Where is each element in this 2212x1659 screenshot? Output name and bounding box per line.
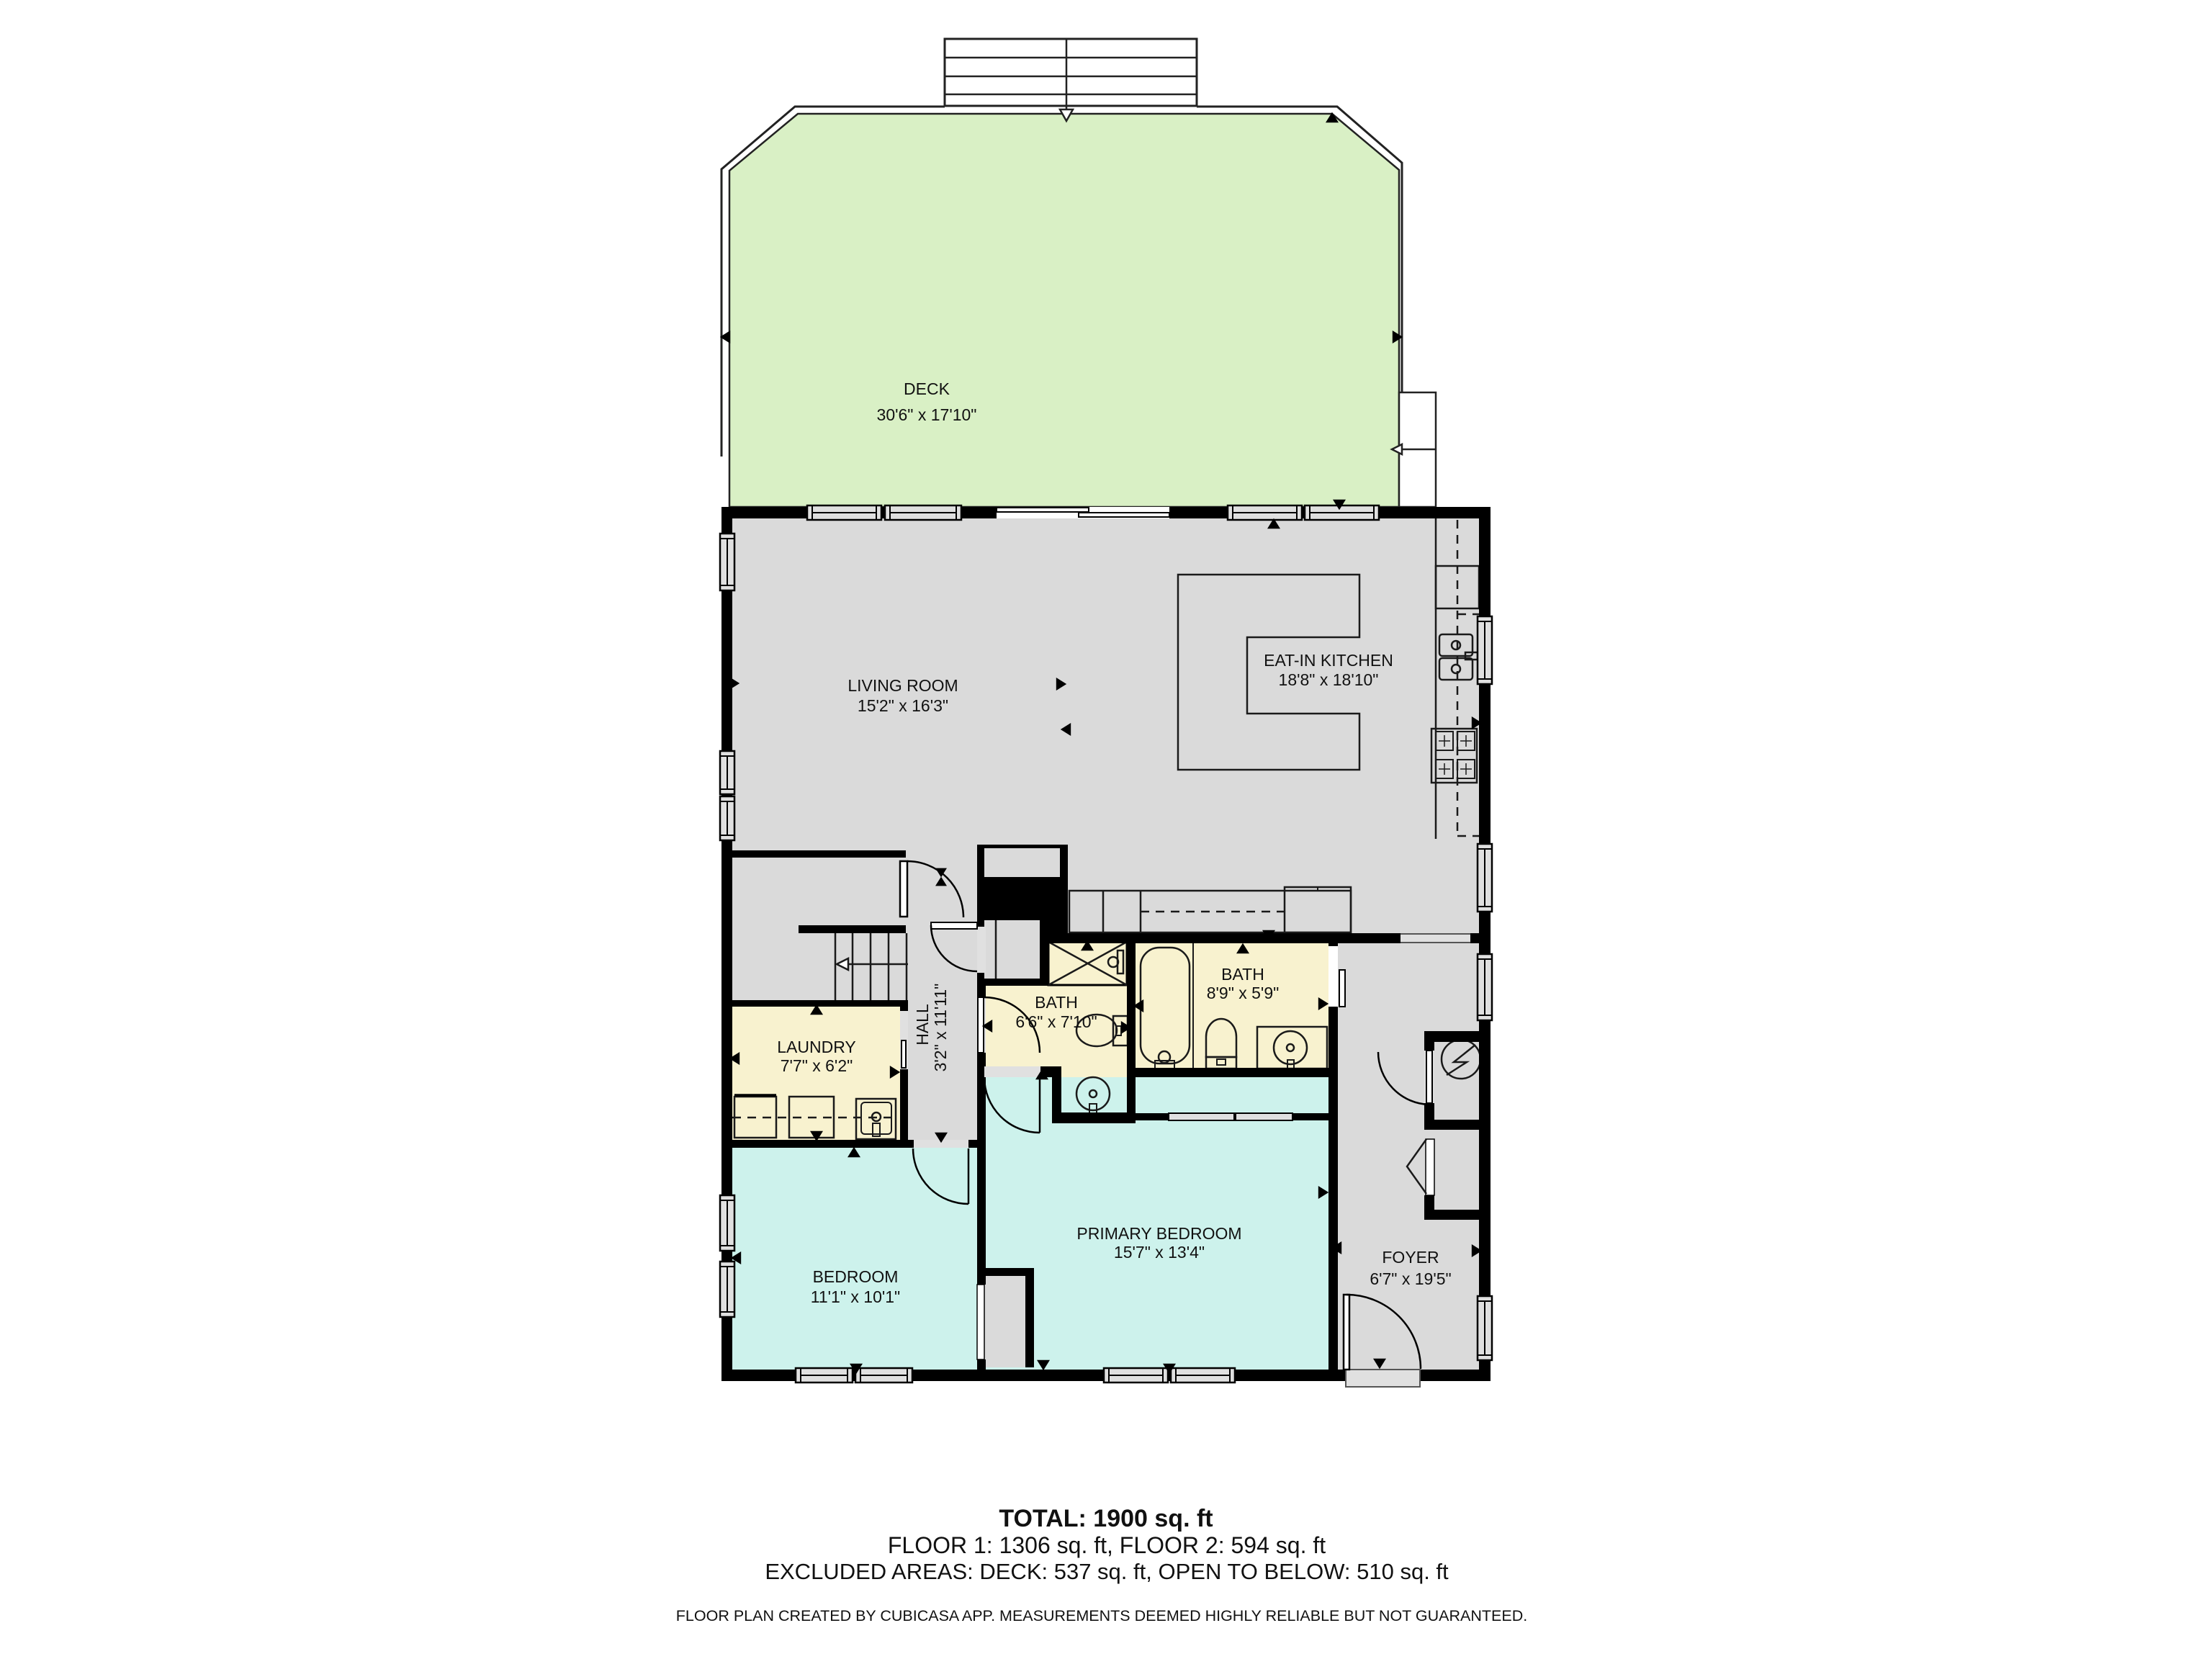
svg-text:FLOOR PLAN CREATED BY CUBICASA: FLOOR PLAN CREATED BY CUBICASA APP. MEAS… bbox=[676, 1607, 1527, 1624]
svg-text:3'2" x 11'11": 3'2" x 11'11" bbox=[931, 984, 950, 1072]
svg-text:FOYER: FOYER bbox=[1382, 1248, 1439, 1267]
svg-text:FLOOR 1: 1306 sq. ft, FLOOR 2:: FLOOR 1: 1306 sq. ft, FLOOR 2: 594 sq. f… bbox=[888, 1532, 1326, 1558]
svg-text:TOTAL: 1900 sq. ft: TOTAL: 1900 sq. ft bbox=[999, 1505, 1213, 1532]
svg-text:PRIMARY BEDROOM: PRIMARY BEDROOM bbox=[1076, 1224, 1241, 1243]
svg-text:BATH: BATH bbox=[1221, 965, 1264, 984]
svg-text:15'2" x 16'3": 15'2" x 16'3" bbox=[858, 696, 948, 715]
svg-text:6'7" x 19'5": 6'7" x 19'5" bbox=[1370, 1269, 1451, 1288]
svg-text:30'6" x 17'10": 30'6" x 17'10" bbox=[877, 405, 977, 424]
svg-text:LIVING ROOM: LIVING ROOM bbox=[848, 676, 958, 695]
svg-text:15'7" x 13'4": 15'7" x 13'4" bbox=[1114, 1243, 1205, 1262]
svg-text:11'1" x 10'1": 11'1" x 10'1" bbox=[811, 1287, 900, 1306]
svg-text:6'6" x 7'10": 6'6" x 7'10" bbox=[1015, 1012, 1097, 1031]
svg-text:BATH: BATH bbox=[1035, 993, 1078, 1012]
svg-text:18'8" x 18'10": 18'8" x 18'10" bbox=[1279, 670, 1379, 689]
svg-text:BEDROOM: BEDROOM bbox=[813, 1267, 899, 1286]
svg-text:7'7" x 6'2": 7'7" x 6'2" bbox=[781, 1056, 853, 1075]
svg-text:EAT-IN KITCHEN: EAT-IN KITCHEN bbox=[1264, 651, 1393, 670]
svg-text:8'9" x 5'9": 8'9" x 5'9" bbox=[1207, 984, 1280, 1002]
svg-text:DECK: DECK bbox=[904, 379, 950, 398]
svg-text:LAUNDRY: LAUNDRY bbox=[777, 1038, 856, 1056]
svg-text:HALL: HALL bbox=[913, 1004, 932, 1046]
svg-text:EXCLUDED AREAS: DECK: 537 sq.: EXCLUDED AREAS: DECK: 537 sq. ft, OPEN T… bbox=[765, 1559, 1449, 1584]
